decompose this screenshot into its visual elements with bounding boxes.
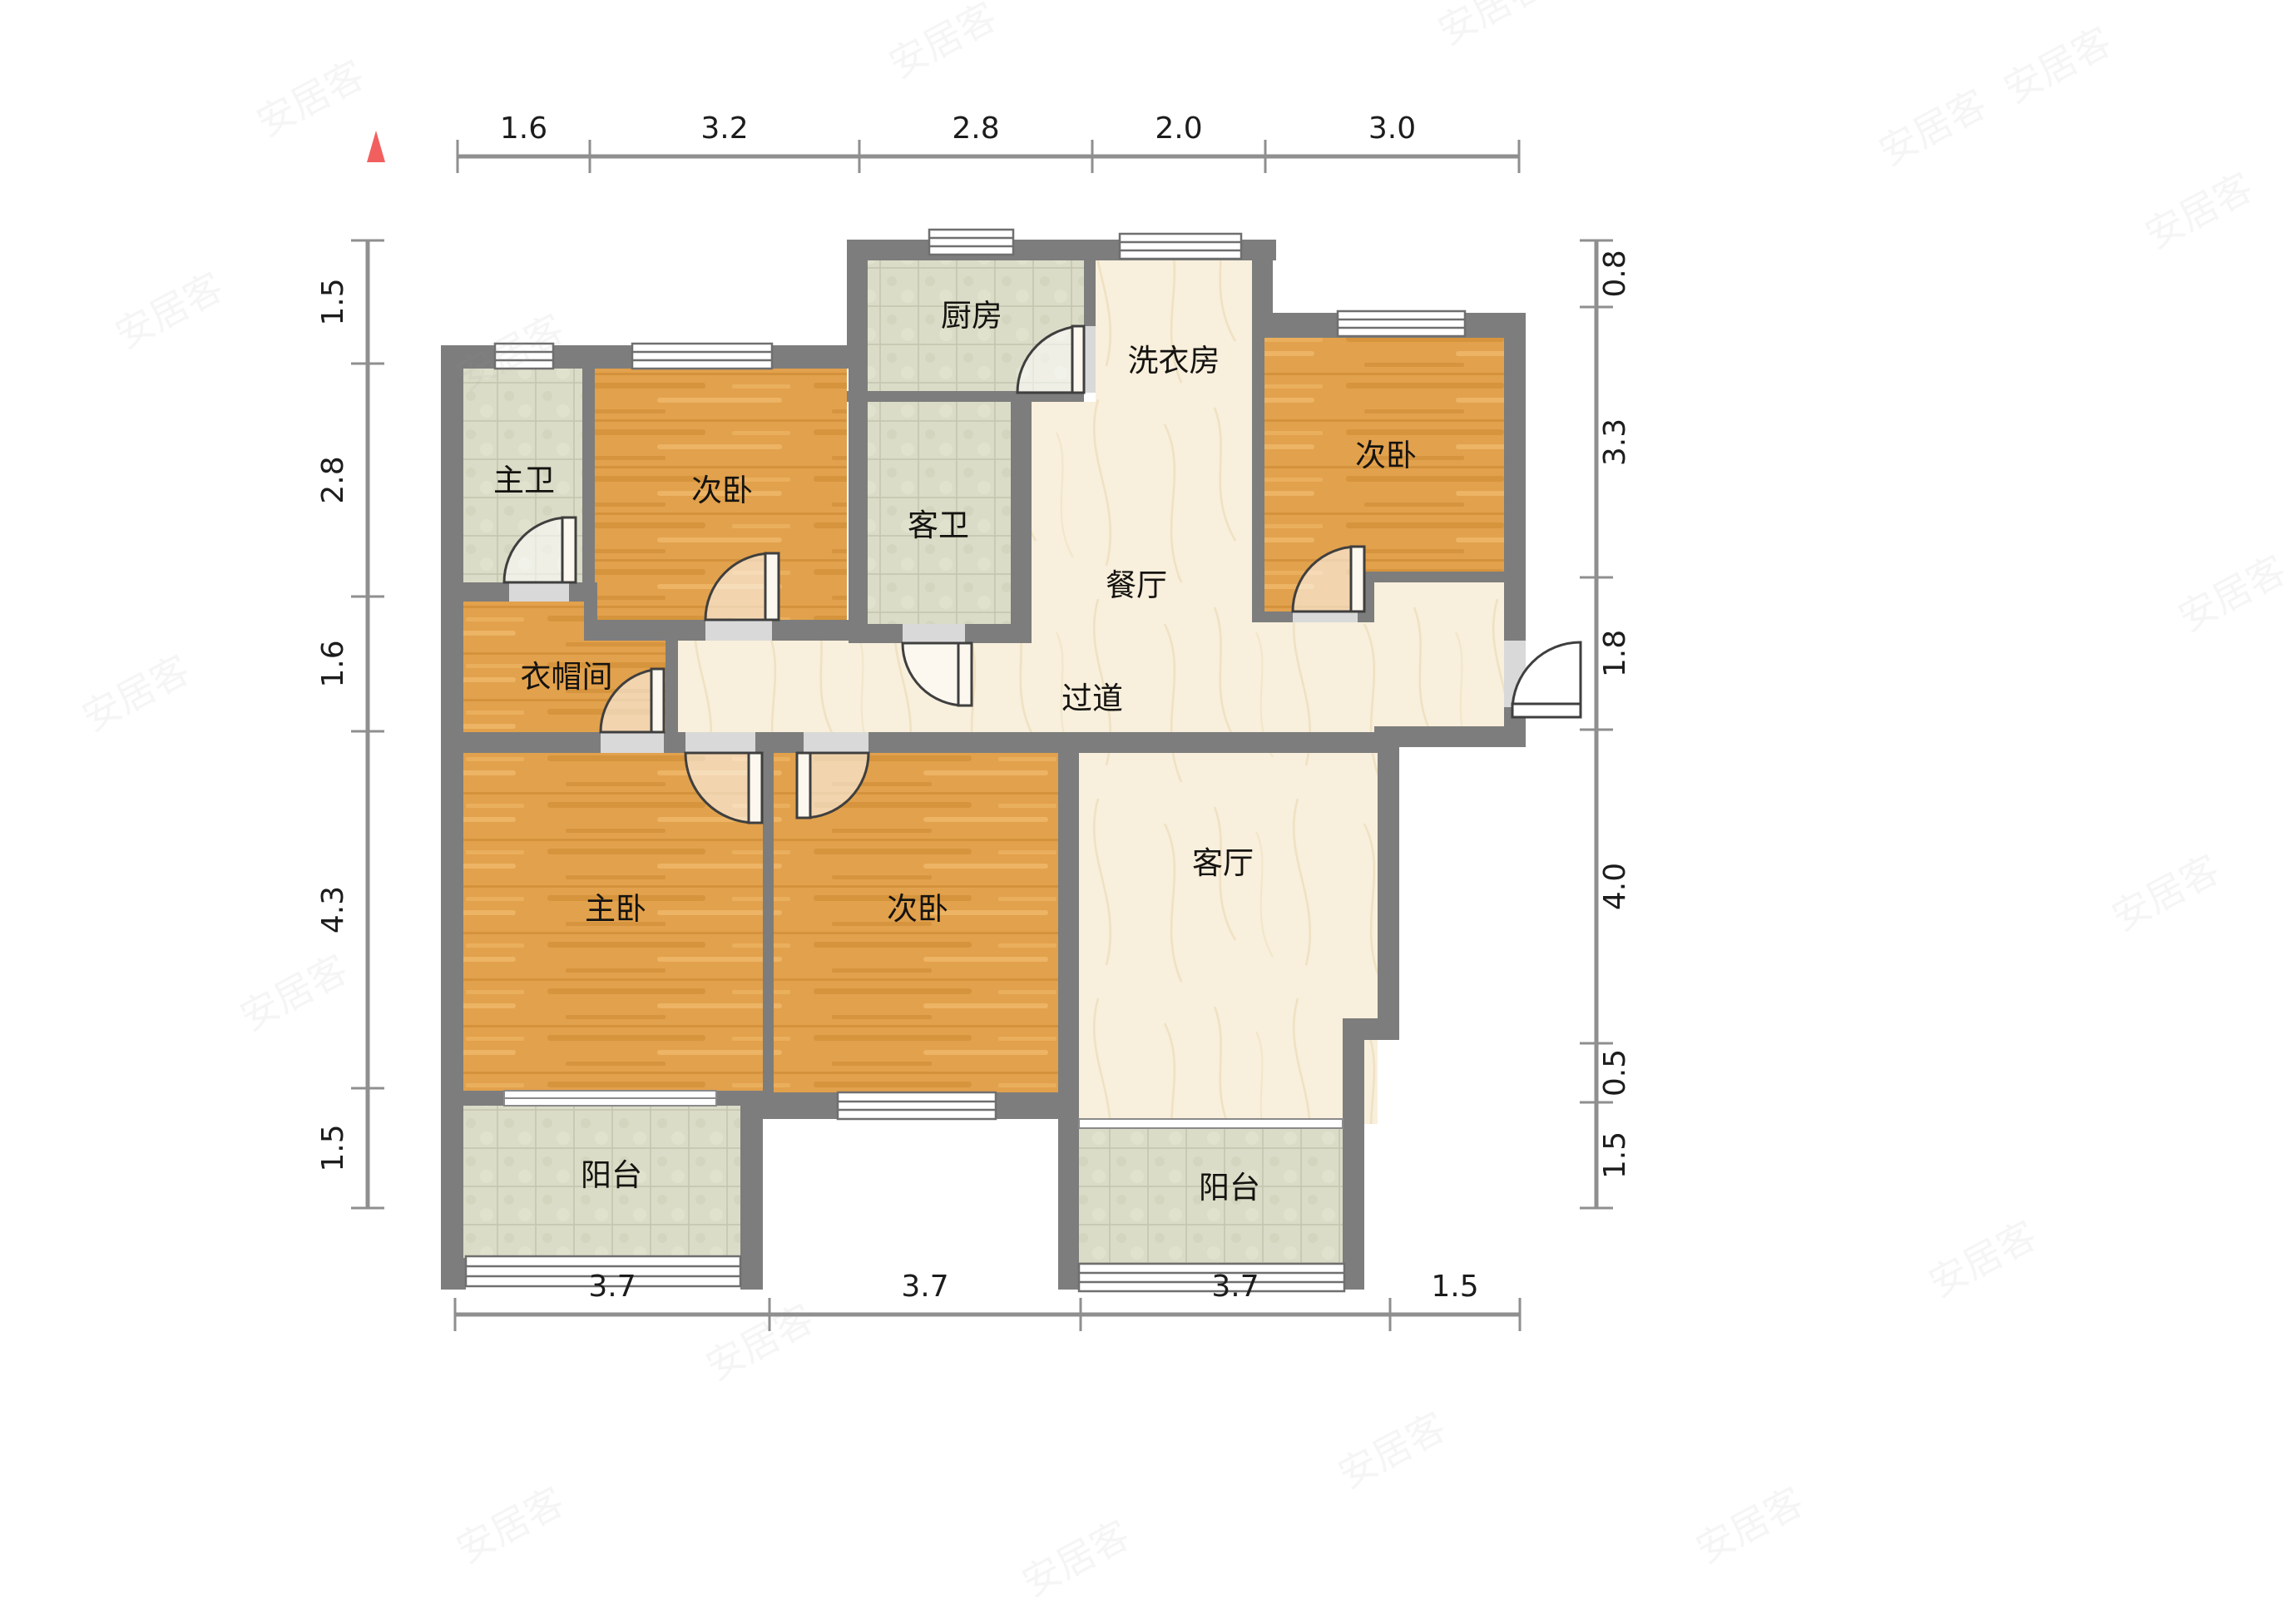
room-label-bedroom-2-ne: 次卧 <box>1355 438 1417 473</box>
dimension-label: 2.8 <box>316 456 350 503</box>
watermark-text: 安居客 <box>1431 0 1553 54</box>
door-threshold <box>1293 611 1358 622</box>
dimension-label: 3.7 <box>1211 1270 1259 1304</box>
room-label-balcony-right: 阳台 <box>1199 1170 1260 1206</box>
wall-segment <box>463 582 509 602</box>
wall-segment <box>965 624 1032 643</box>
room-label-hallway: 过道 <box>1061 681 1123 716</box>
wall-segment <box>441 345 463 1290</box>
wall-segment <box>755 732 804 753</box>
dimension-label: 1.5 <box>316 1124 350 1171</box>
window <box>1120 234 1241 259</box>
dimension-chain-top: 1.63.22.82.03.0 <box>458 111 1519 173</box>
room-floor-living <box>1079 753 1378 1124</box>
watermark-text: 安居客 <box>75 646 197 740</box>
door-threshold <box>804 732 868 753</box>
room-label-master-bath: 主卫 <box>493 463 555 498</box>
wall-segment <box>1374 726 1526 747</box>
door-threshold <box>903 624 965 643</box>
dimension-label: 4.0 <box>1598 863 1632 910</box>
watermark-text: 安居客 <box>1331 1404 1453 1497</box>
wall-segment <box>584 582 597 641</box>
dimension-label: 1.8 <box>1598 630 1632 677</box>
dimension-label: 0.8 <box>1598 250 1632 297</box>
floor-plan: 主卫次卧厨房洗衣房客卫餐厅次卧衣帽间过道主卧次卧客厅阳台阳台 1.63.22.8… <box>0 0 2296 1624</box>
dimension-label: 1.6 <box>500 111 547 146</box>
wall-segment <box>740 1092 763 1290</box>
room-label-balcony-left: 阳台 <box>581 1157 642 1193</box>
dimension-label: 3.2 <box>700 111 748 146</box>
wall-segment <box>1363 572 1504 582</box>
watermark-text: 安居客 <box>2105 846 2227 939</box>
door-threshold <box>705 620 772 641</box>
balcony-sliding-door <box>504 1091 716 1106</box>
watermark-text: 安居客 <box>1689 1478 1811 1572</box>
watermark-text: 安居客 <box>699 1295 821 1389</box>
room-label-master-bedroom: 主卧 <box>585 891 646 927</box>
wall-segment <box>582 369 595 602</box>
wall-segment <box>1011 402 1032 643</box>
watermark-text: 安居客 <box>2171 547 2294 640</box>
wall-segment <box>763 1092 838 1119</box>
room-label-living-room: 客厅 <box>1192 845 1254 881</box>
dimension-chain-left: 1.52.81.64.31.5 <box>316 240 384 1208</box>
wall-segment <box>772 620 849 641</box>
wall-segment <box>996 1092 1079 1119</box>
watermark-text: 安居客 <box>2138 164 2260 257</box>
wall-segment <box>868 732 1382 753</box>
wall-segment <box>664 732 685 753</box>
wall-segment <box>1084 260 1096 326</box>
window <box>1338 311 1465 336</box>
wall-segment <box>763 753 774 1092</box>
wall-segment <box>441 1258 466 1290</box>
wall-segment <box>441 1091 504 1106</box>
dimension-label: 1.6 <box>316 640 350 687</box>
watermark-text: 安居客 <box>1997 18 2119 111</box>
room-label-dining: 餐厅 <box>1106 567 1167 603</box>
watermark-text: 安居客 <box>882 0 1004 87</box>
room-label-guest-bath: 客卫 <box>908 507 969 543</box>
dimension-label: 3.7 <box>588 1270 636 1304</box>
room-label-bedroom-2-s: 次卧 <box>887 891 948 927</box>
room-label-bedroom-2-nw: 次卧 <box>691 473 753 508</box>
wall-segment <box>1252 338 1264 622</box>
window <box>632 344 772 369</box>
room-label-laundry: 洗衣房 <box>1128 343 1220 379</box>
wall-segment <box>849 369 868 643</box>
wall-segment <box>849 624 903 643</box>
door-threshold <box>504 582 569 602</box>
wall-segment <box>1504 313 1526 641</box>
dimension-label: 2.8 <box>952 111 999 146</box>
wall-segment <box>1358 611 1374 622</box>
wall-segment <box>597 620 705 641</box>
dimension-label: 4.3 <box>316 886 350 933</box>
wall-segment <box>1343 1018 1399 1040</box>
watermark-text: 安居客 <box>1922 1212 2044 1305</box>
window <box>838 1092 996 1119</box>
door-threshold <box>1084 326 1096 393</box>
window <box>929 230 1013 255</box>
dimension-label: 3.3 <box>1598 418 1632 466</box>
wall-segment <box>1058 753 1079 1290</box>
door-threshold <box>685 732 755 753</box>
wall-segment <box>1378 747 1399 1018</box>
watermark-text: 安居客 <box>1872 81 1994 174</box>
dimension-label: 1.5 <box>1431 1270 1478 1304</box>
watermark-text: 安居客 <box>108 264 230 357</box>
dimension-label: 1.5 <box>316 278 350 325</box>
watermark-text: 安居客 <box>449 1478 572 1572</box>
watermark-text: 安居客 <box>250 52 372 145</box>
dimension-label: 2.0 <box>1155 111 1202 146</box>
watermark-text: 安居客 <box>1015 1512 1137 1605</box>
wall-segment <box>463 732 601 753</box>
room-label-cloakroom: 衣帽间 <box>521 659 613 695</box>
wall-segment <box>1254 611 1293 622</box>
room-label-kitchen: 厨房 <box>941 298 1002 334</box>
dimension-label: 1.5 <box>1598 1131 1632 1179</box>
wall-segment <box>666 637 678 732</box>
door-threshold <box>601 732 664 753</box>
room-floor-entry2 <box>1374 582 1504 732</box>
dimension-label: 0.5 <box>1598 1049 1632 1097</box>
wall-segment <box>1343 1040 1364 1290</box>
dimension-label: 3.0 <box>1368 111 1416 146</box>
dimension-label: 3.7 <box>901 1270 948 1304</box>
north-indicator-icon <box>367 131 385 162</box>
watermark-text: 安居客 <box>233 946 355 1039</box>
dimension-chain-right: 0.83.31.84.00.51.5 <box>1580 240 1632 1208</box>
balcony-sliding-door <box>1079 1119 1343 1128</box>
